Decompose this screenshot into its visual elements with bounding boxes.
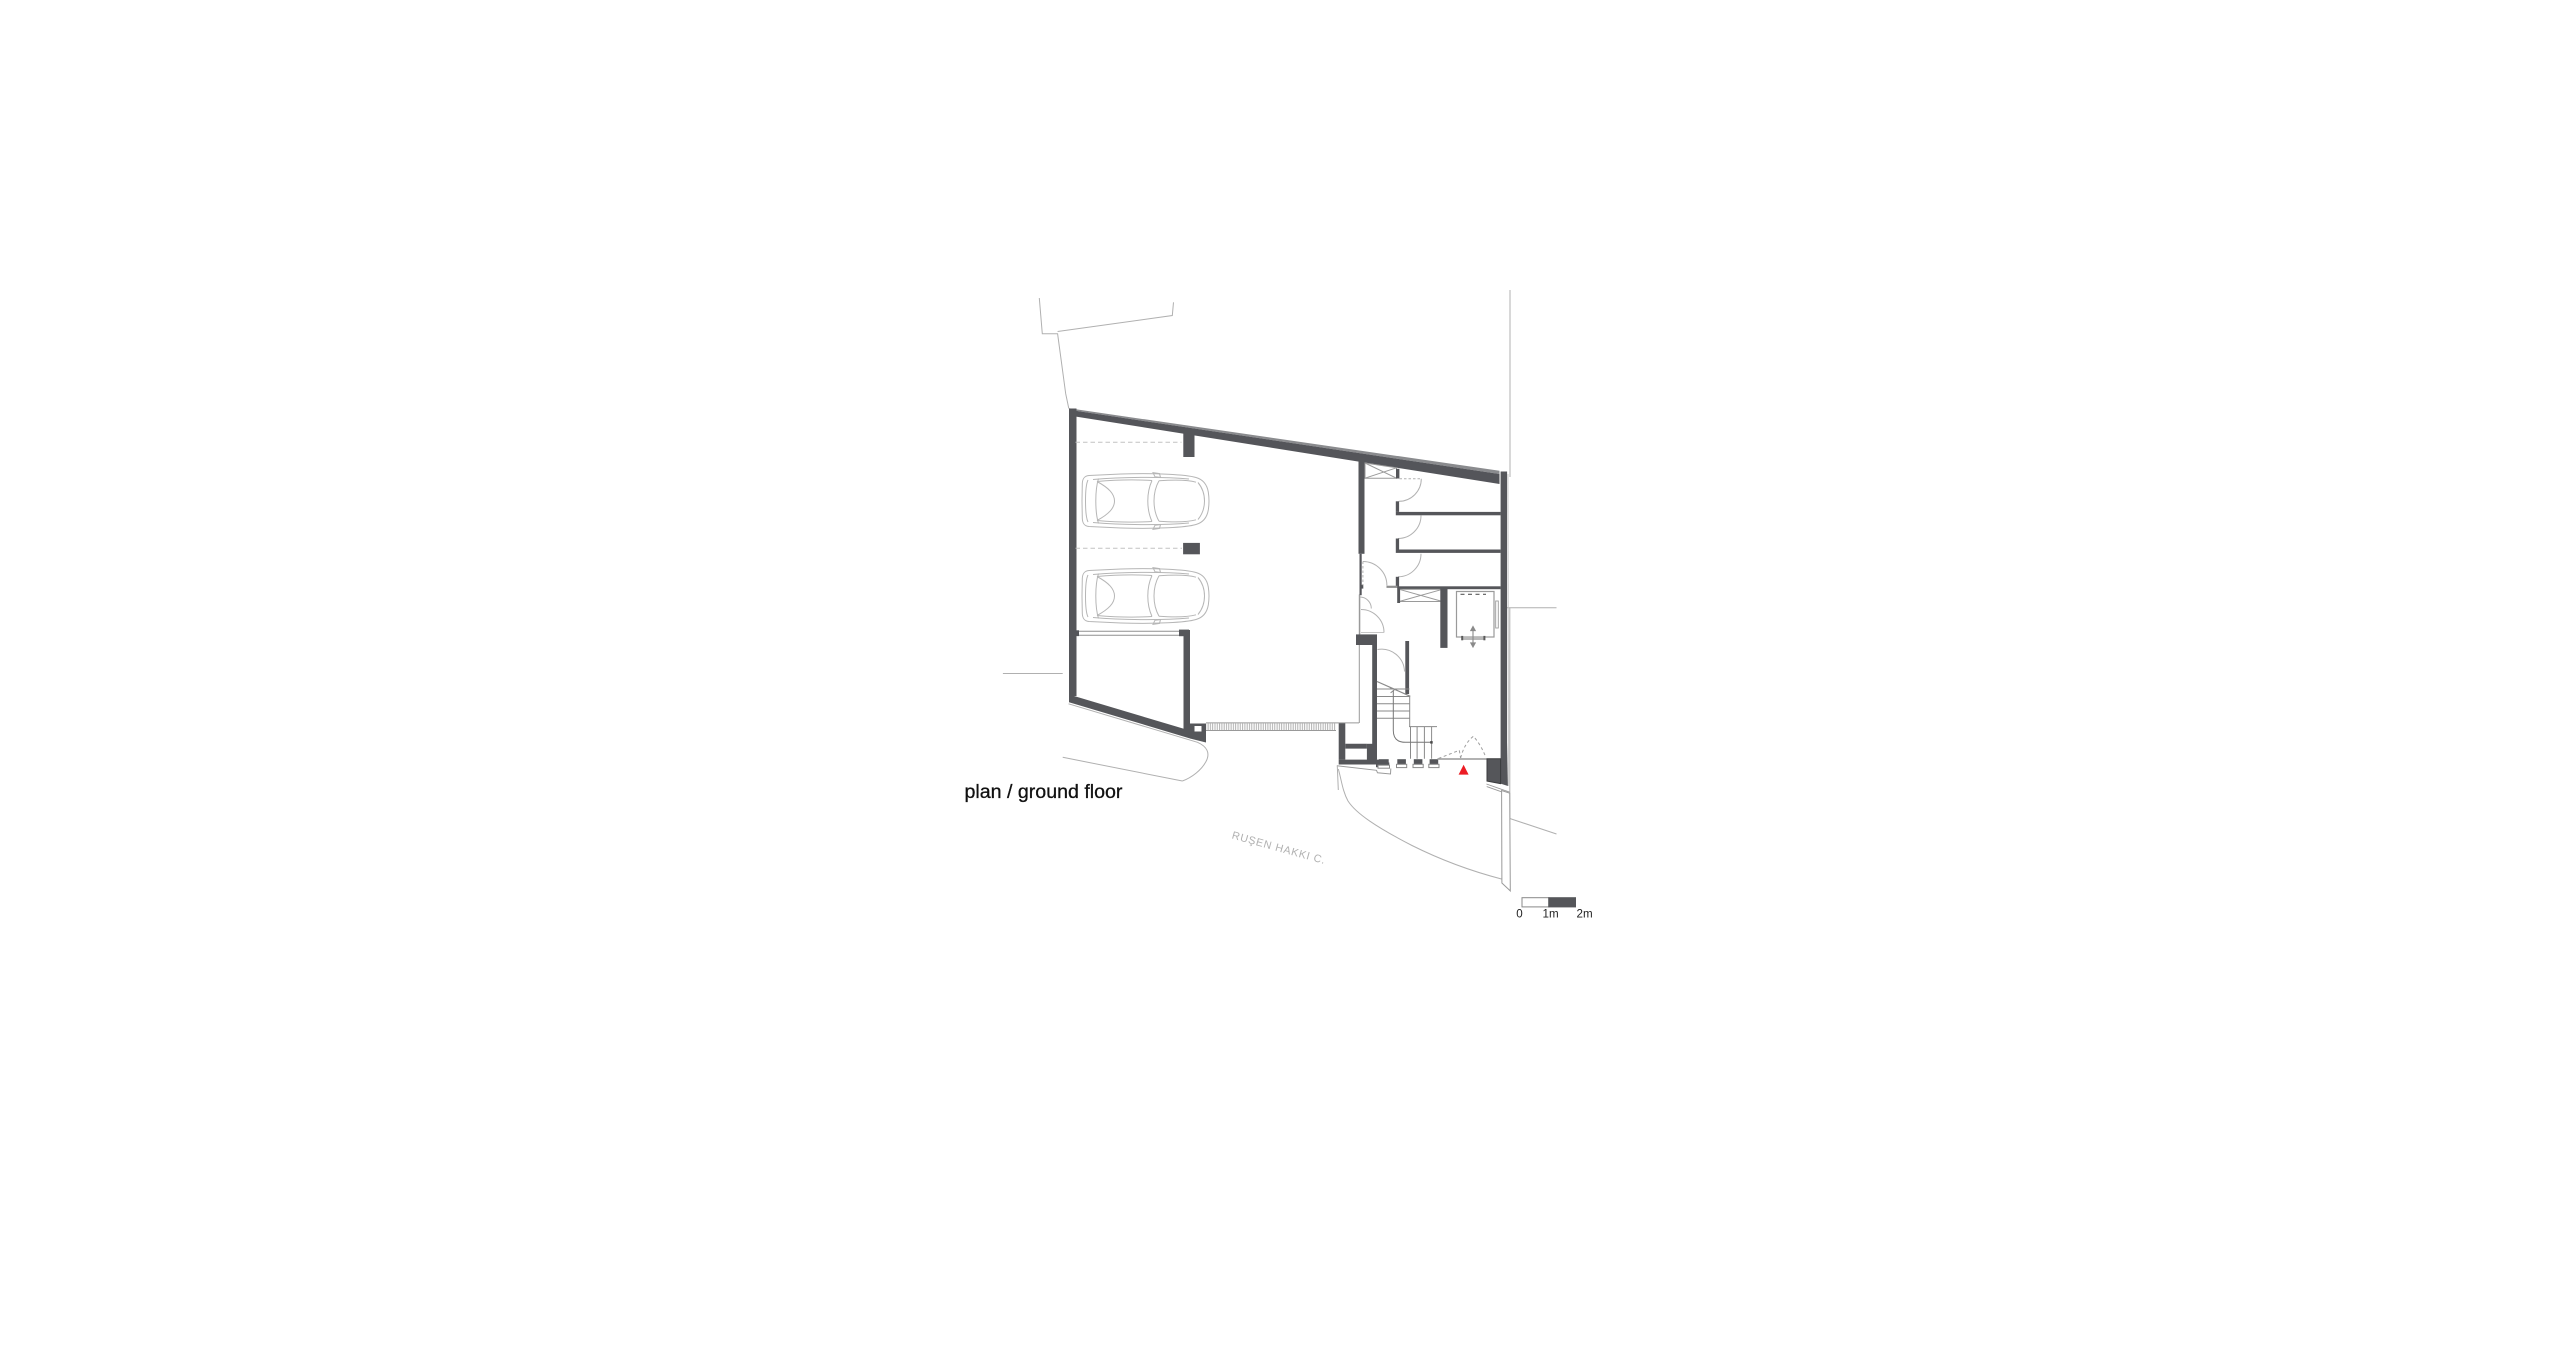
svg-text:0: 0 bbox=[1516, 908, 1522, 921]
svg-text:2m: 2m bbox=[1577, 908, 1593, 921]
svg-text:plan / ground floor: plan / ground floor bbox=[965, 781, 1123, 803]
svg-text:1m: 1m bbox=[1543, 908, 1559, 921]
